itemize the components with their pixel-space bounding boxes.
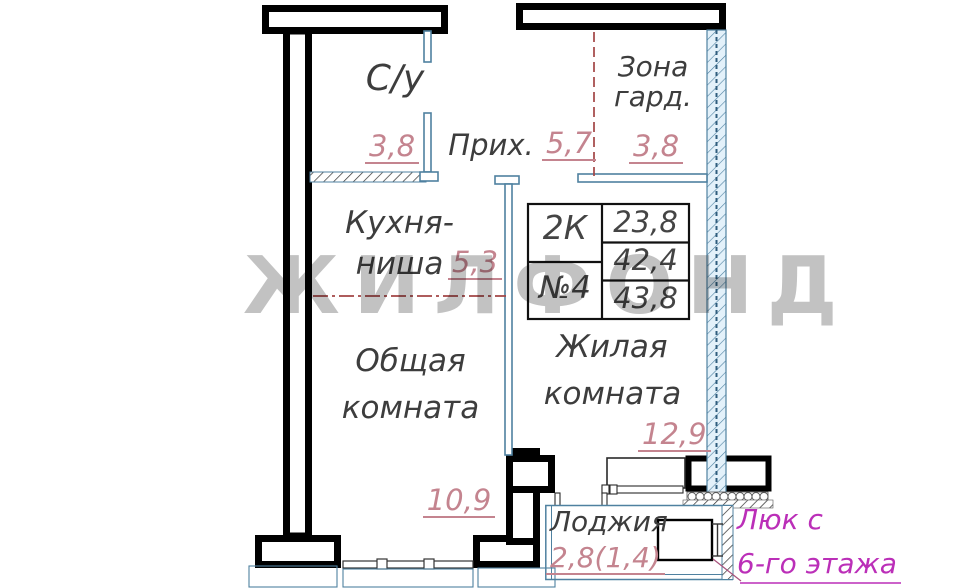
zone-boundary-lines bbox=[313, 32, 594, 296]
floor-plan: С/у 3,8 Прих. 5,7 Зона гард. 3,8 Кухня- … bbox=[0, 0, 976, 588]
lower-facade-lines bbox=[249, 566, 555, 587]
info-table-grid bbox=[528, 204, 689, 319]
floor-plan-drawing bbox=[0, 0, 976, 588]
right-insulated-wall bbox=[707, 30, 726, 510]
living-room-window bbox=[555, 458, 685, 506]
exterior-walls bbox=[259, 7, 769, 565]
common-room-window bbox=[343, 559, 473, 569]
bathroom-hatched-wall bbox=[310, 172, 426, 182]
